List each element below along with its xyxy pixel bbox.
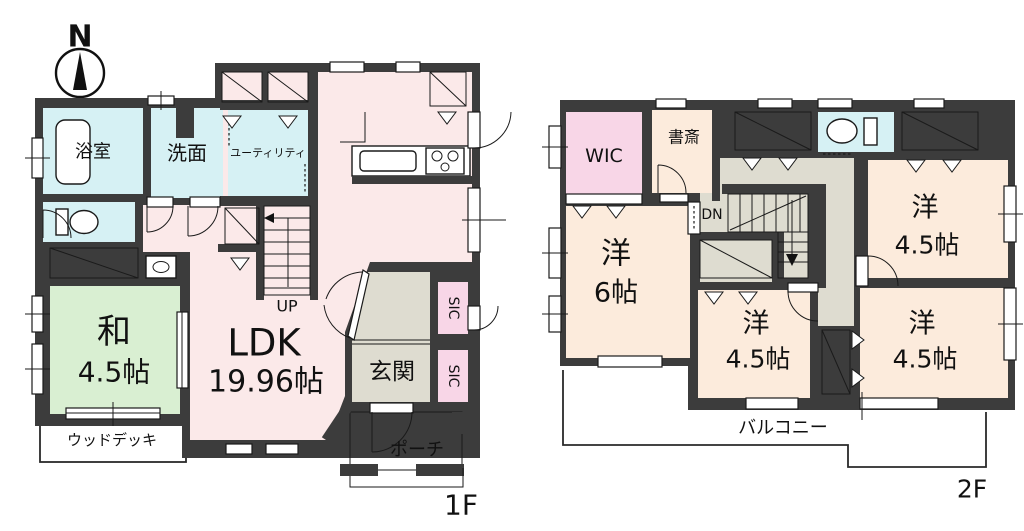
label-japanese-name: 和 (97, 312, 131, 352)
label-west45-bm-name: 洋 (743, 309, 770, 340)
label-stairs-down: DN (701, 207, 722, 223)
label-west6-name: 洋 (601, 237, 631, 272)
label-sic-upper: SIC (445, 297, 461, 320)
label-wood-deck: ウッドデッキ (67, 431, 157, 449)
label-porch: ポーチ (390, 440, 444, 461)
label-entrance: 玄関 (369, 359, 415, 385)
label-bath: 浴室 (75, 142, 111, 163)
label-study: 書斎 (668, 128, 700, 147)
label-washroom: 洗面 (167, 141, 207, 165)
compass-north-label: N (67, 20, 92, 55)
label-ldk-name: LDK (227, 322, 302, 365)
hallway-1f (143, 205, 222, 252)
label-sic-lower: SIC (445, 365, 461, 388)
label-west6-size: 6帖 (594, 278, 638, 309)
label-utility: ユーティリティ (230, 147, 306, 160)
label-floor2: 2F (957, 475, 987, 504)
label-wic: WIC (585, 145, 623, 167)
compass-icon: N (56, 20, 104, 98)
label-west45-br-size: 4.5帖 (893, 345, 958, 374)
floor2-plan: WIC 書斎 DN 洋 6帖 洋 4.5帖 洋 4.5帖 洋 4.5帖 バルコニ… (542, 99, 1023, 504)
label-stairs-up: UP (276, 297, 298, 316)
toilet-icon-1f (56, 209, 98, 235)
floor1-plan: 浴室 洗面 ユーティリティ 和 4.5帖 LDK 19.96帖 玄関 SIC S… (25, 62, 511, 522)
room-study (652, 110, 712, 193)
room-west45-bottomright (860, 288, 1008, 398)
label-west45-tr-size: 4.5帖 (895, 231, 960, 260)
stove-icon (426, 148, 464, 174)
floorplan-svg: N (0, 0, 1024, 531)
floorplan-page: N (0, 0, 1024, 531)
label-balcony: バルコニー (738, 418, 828, 439)
sink-icon (360, 151, 416, 171)
label-west45-br-name: 洋 (909, 309, 936, 340)
label-ldk-size: 19.96帖 (208, 365, 324, 400)
label-japanese-size: 4.5帖 (78, 356, 151, 389)
label-west45-bm-size: 4.5帖 (726, 345, 791, 374)
label-floor1: 1F (444, 489, 478, 522)
label-west45-tr-name: 洋 (912, 193, 939, 224)
hand-basin-icon (146, 256, 176, 278)
